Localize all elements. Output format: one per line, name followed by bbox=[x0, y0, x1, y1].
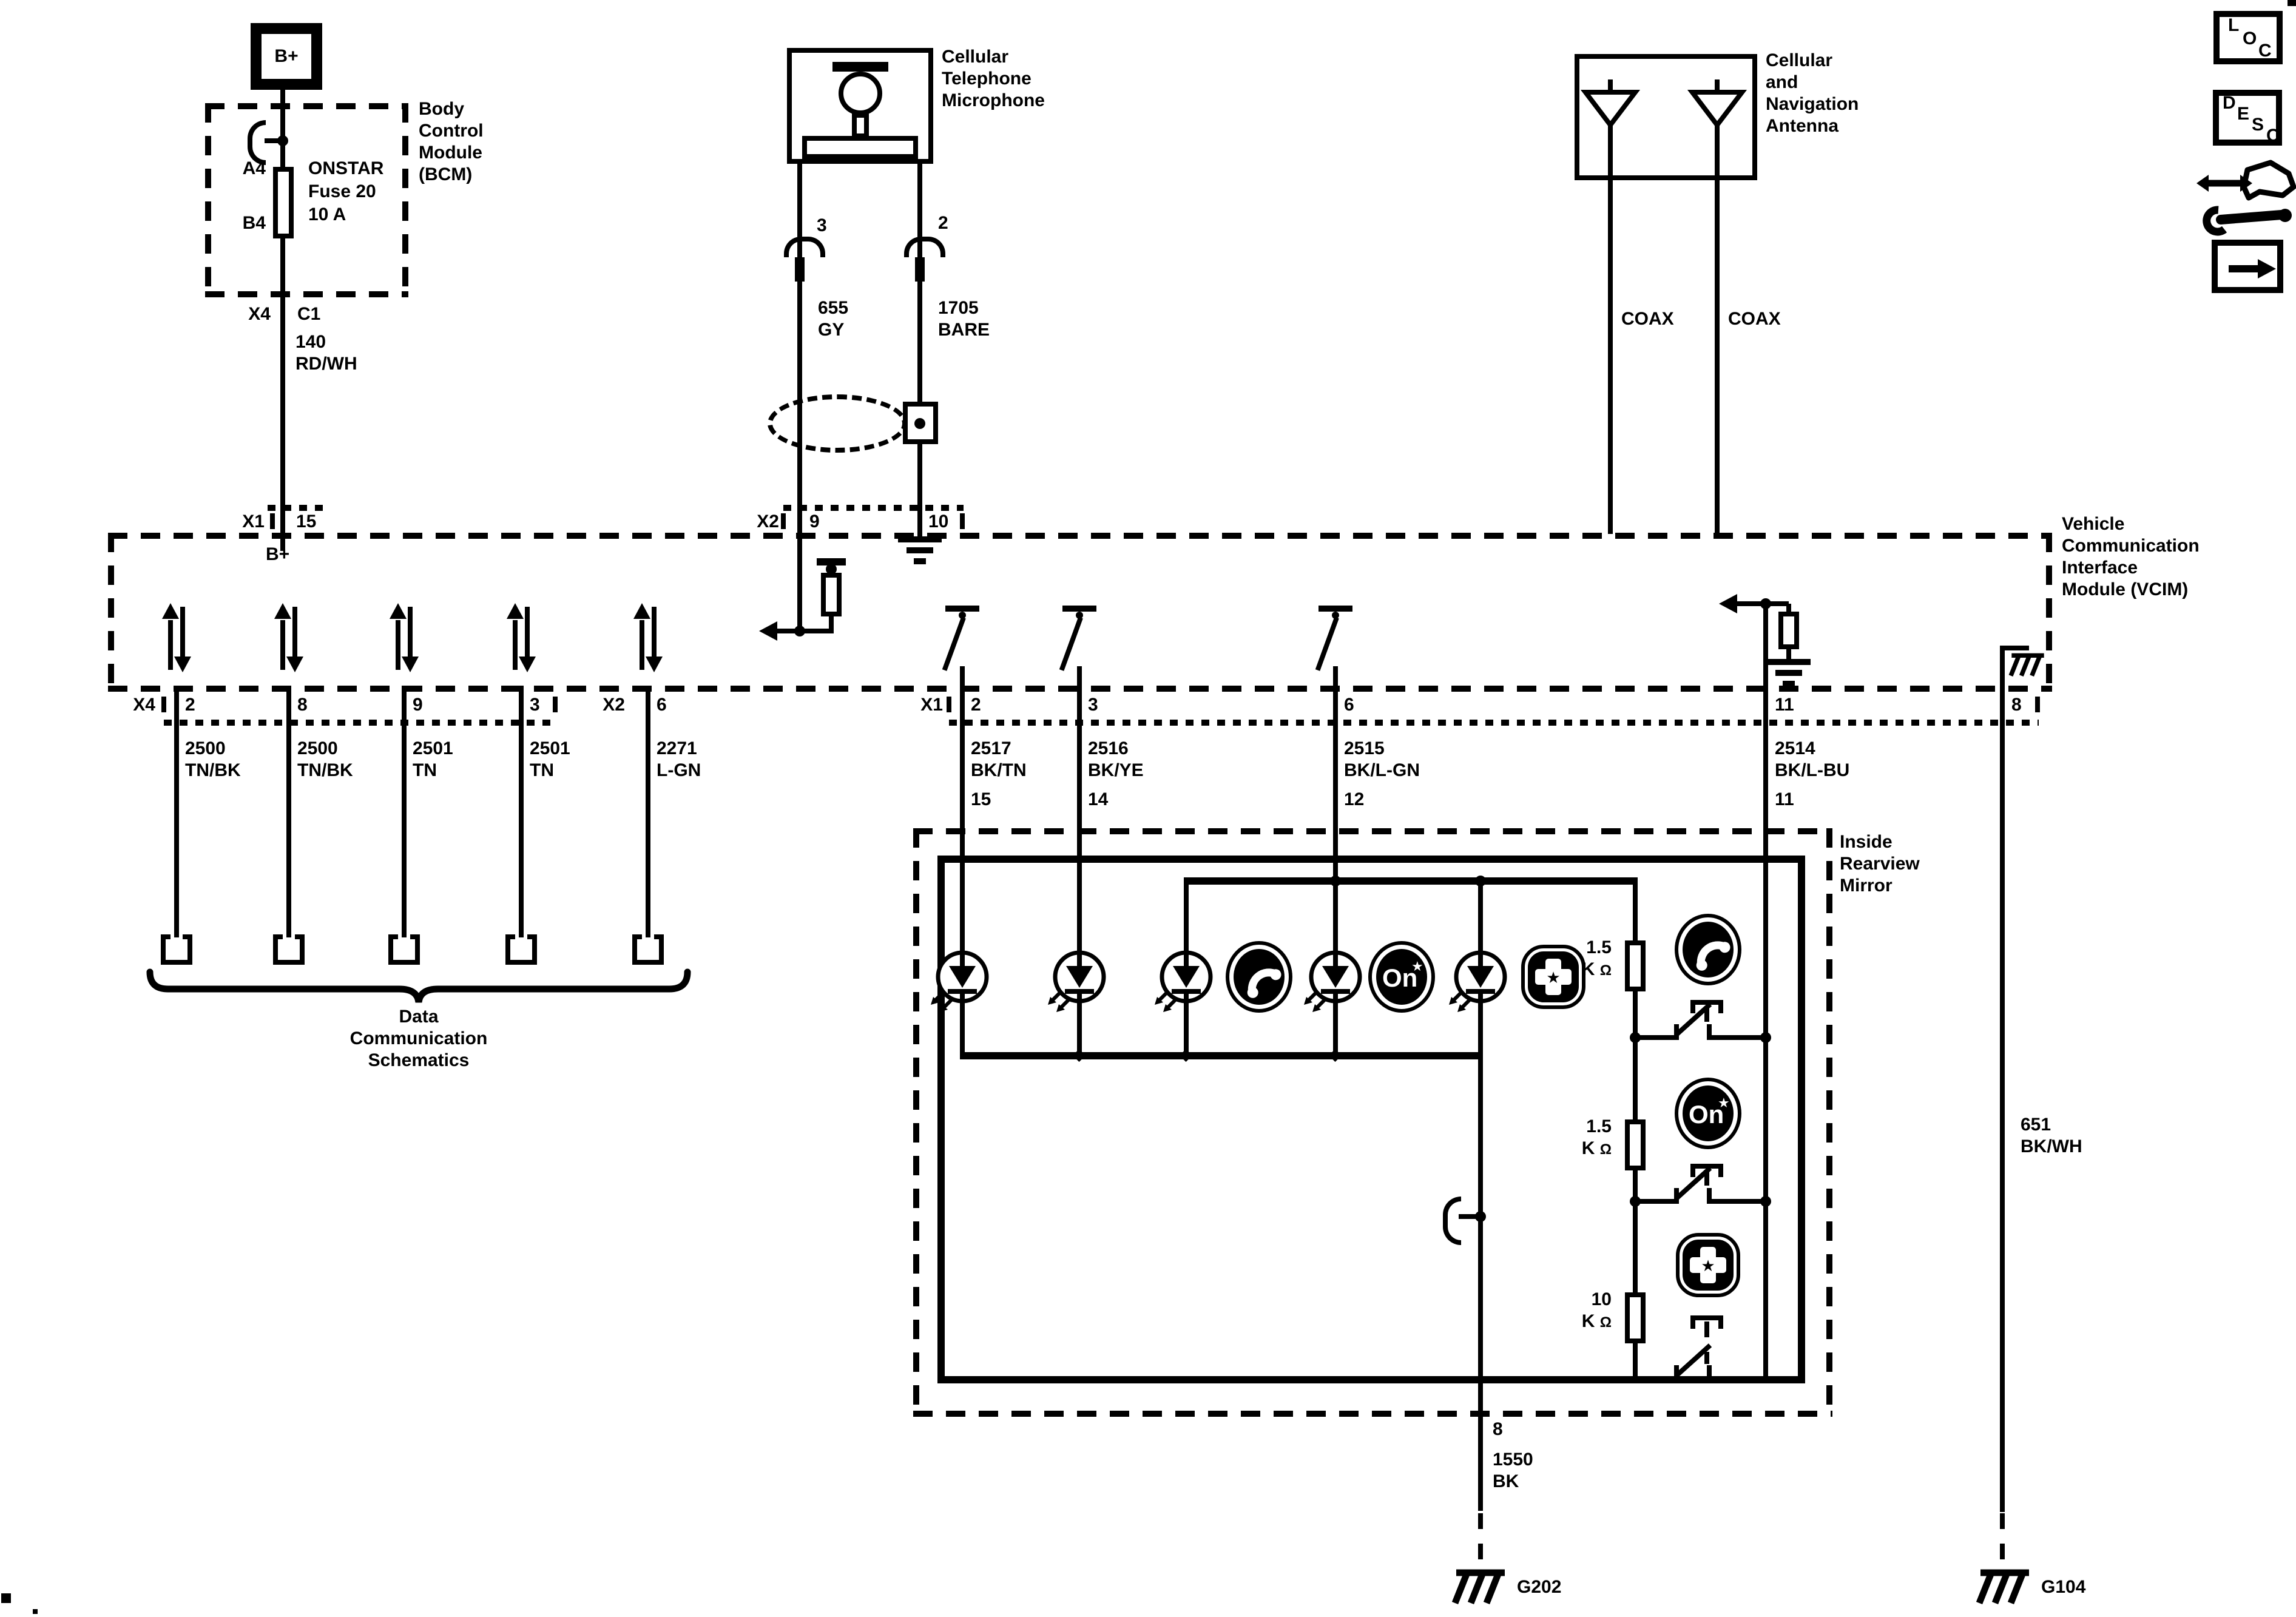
splice-dot bbox=[914, 418, 925, 429]
resistor2-value: 1.5 bbox=[1551, 1117, 1612, 1136]
sense-pullup-resistor bbox=[1778, 612, 1799, 649]
keypad-resistor-3 bbox=[1625, 1292, 1646, 1343]
arrow-down-icon bbox=[174, 657, 191, 672]
offpage-terminal bbox=[505, 960, 537, 965]
arrow-up-icon bbox=[162, 603, 179, 619]
earth-ground-icon bbox=[907, 547, 933, 553]
contact-line bbox=[1707, 1376, 1768, 1381]
svg-text:★: ★ bbox=[1411, 959, 1423, 974]
mirror-wire-num: 2516 bbox=[1088, 739, 1129, 758]
bcm-name-2: Control bbox=[419, 121, 484, 141]
arrow-up-shaft bbox=[168, 620, 173, 670]
gnd-stub bbox=[2000, 646, 2029, 650]
connector-tick bbox=[2035, 697, 2040, 712]
coax-label-left: COAX bbox=[1621, 309, 1674, 329]
arrow-up-icon bbox=[633, 603, 650, 619]
led-feed-bus bbox=[1184, 877, 1638, 885]
data-wire-color: TN/BK bbox=[185, 761, 241, 780]
mic-name-3: Microphone bbox=[942, 91, 1045, 110]
phone-icon bbox=[1223, 939, 1295, 1014]
connector-tick bbox=[270, 513, 275, 529]
brace-label-3: Schematics bbox=[206, 1051, 631, 1070]
ladder-left-rail bbox=[1633, 881, 1638, 943]
ladder-left-rail bbox=[1633, 1170, 1638, 1295]
arrow-down-icon bbox=[286, 657, 303, 672]
mirror-box-top bbox=[913, 828, 1832, 834]
data-wire-num: 2501 bbox=[413, 739, 453, 758]
arrow-up-shaft bbox=[280, 620, 285, 670]
offpage-terminal bbox=[388, 960, 420, 965]
onstar-icon: On★ bbox=[1365, 939, 1438, 1014]
earth-ground-icon bbox=[1783, 681, 1795, 687]
bcm-box-right bbox=[402, 103, 408, 297]
ground-g202-label: G202 bbox=[1517, 1578, 1561, 1597]
mirror-box-right bbox=[1826, 828, 1832, 1417]
wire-140-num: 140 bbox=[295, 333, 326, 352]
switch-contact-bar bbox=[1319, 606, 1352, 612]
mirror-wire-color: BK/L-GN bbox=[1344, 761, 1420, 780]
x1-pin-8: 8 bbox=[2011, 695, 2022, 715]
switch-contact-bar bbox=[1062, 606, 1096, 612]
mirror-wire-num: 2514 bbox=[1775, 739, 1815, 758]
actuator-link bbox=[1704, 1322, 1709, 1364]
x4-label: X4 bbox=[114, 695, 155, 715]
contact-line bbox=[1707, 1035, 1768, 1040]
mirror-pin: 12 bbox=[1344, 790, 1364, 809]
sense-stub bbox=[1766, 601, 1789, 606]
fuse-number: Fuse 20 bbox=[308, 182, 376, 201]
page-mark bbox=[33, 1609, 38, 1614]
mirror-wire-color: BK/L-BU bbox=[1775, 761, 1849, 780]
loc-icon[interactable]: L O C bbox=[2213, 11, 2283, 64]
connector-tick bbox=[553, 697, 558, 712]
arrow-down-icon bbox=[402, 657, 419, 672]
actuator-bracket bbox=[1718, 1320, 1723, 1329]
data-wire bbox=[402, 686, 407, 937]
mirror-pin-8: 8 bbox=[1493, 1420, 1503, 1439]
x4-pin-8: 8 bbox=[297, 695, 308, 715]
wire-655-color: GY bbox=[818, 320, 844, 340]
resistor2-unit: K Ω bbox=[1551, 1139, 1612, 1160]
earth-ground-icon bbox=[914, 558, 926, 564]
microphone-icon-head bbox=[839, 72, 882, 115]
mirror-pin: 15 bbox=[971, 790, 991, 809]
antenna-icon bbox=[1690, 90, 1744, 129]
earth-ground-icon bbox=[898, 536, 942, 542]
connector-tick bbox=[161, 697, 166, 712]
arrow-up-shaft bbox=[396, 620, 400, 670]
arrow-down-icon bbox=[646, 657, 663, 672]
mirror-box-bottom bbox=[913, 1411, 1832, 1417]
inline-connector-icon bbox=[904, 237, 945, 257]
led-icon bbox=[1299, 940, 1372, 1013]
data-wire bbox=[519, 686, 524, 937]
actuator-link bbox=[1704, 1006, 1709, 1028]
mirror-pin: 14 bbox=[1088, 790, 1108, 809]
next-page-icon[interactable] bbox=[2212, 240, 2283, 293]
junction-dot bbox=[1630, 1032, 1641, 1043]
actuator-bracket bbox=[1690, 1169, 1695, 1177]
sense-stub bbox=[1786, 604, 1791, 612]
brace-label-1: Data bbox=[206, 1007, 631, 1027]
ladder-left-rail bbox=[1633, 1343, 1638, 1379]
offpage-terminal bbox=[632, 960, 664, 965]
x4-pin-9: 9 bbox=[413, 695, 423, 715]
led-return-bus bbox=[960, 1052, 1483, 1059]
microphone-icon-stem bbox=[852, 113, 869, 138]
ladder-left-rail bbox=[1633, 991, 1638, 1122]
switch-lever bbox=[1315, 617, 1339, 671]
bcm-name-3: Module bbox=[419, 143, 482, 163]
arrow-down-shaft bbox=[292, 607, 297, 657]
x2-mic-pin9: 9 bbox=[809, 512, 820, 532]
ground-g104-label: G104 bbox=[2041, 1578, 2085, 1597]
bcm-name-4: (BCM) bbox=[419, 165, 472, 184]
keypad-resistor-2 bbox=[1625, 1119, 1646, 1170]
x2-mic-connector-line bbox=[783, 505, 964, 511]
x1-label: X1 bbox=[902, 695, 943, 715]
inline-connector-pin bbox=[915, 257, 925, 282]
mic-name-1: Cellular bbox=[942, 47, 1008, 67]
bcm-box-bottom bbox=[205, 291, 408, 297]
ground-wire-dashed bbox=[2000, 1513, 2005, 1565]
x1-pin-3: 3 bbox=[1088, 695, 1098, 715]
data-wire-num: 2271 bbox=[657, 739, 697, 758]
data-wire-color: TN bbox=[530, 761, 554, 780]
mirror-wire-color: BK/YE bbox=[1088, 761, 1144, 780]
antenna-name-1: Cellular bbox=[1766, 51, 1832, 70]
contact-line bbox=[1707, 1199, 1768, 1204]
wire-1550-color: BK bbox=[1493, 1472, 1519, 1491]
chassis-ground-icon bbox=[2008, 650, 2047, 681]
mirror-name-1: Inside bbox=[1840, 832, 1893, 852]
antenna-name-3: Navigation bbox=[1766, 95, 1859, 114]
mic-pin-left: 3 bbox=[817, 216, 827, 235]
mic-pin-right: 2 bbox=[938, 214, 948, 233]
x4-connector-line bbox=[164, 720, 555, 726]
junction-dot bbox=[1475, 1211, 1486, 1222]
offpage-terminal bbox=[273, 960, 305, 965]
coax-wire-right bbox=[1715, 124, 1720, 534]
repair-procedure-icon[interactable] bbox=[2196, 159, 2296, 235]
x1-top-pin: 15 bbox=[296, 512, 316, 532]
contact-tip bbox=[1707, 1365, 1712, 1376]
actuator-bracket bbox=[1718, 1005, 1723, 1013]
desc-icon[interactable]: D E S C bbox=[2213, 90, 2282, 146]
mic-signal-line bbox=[776, 629, 797, 633]
ground-wire-dashed bbox=[1478, 1513, 1483, 1565]
bcm-box-top bbox=[205, 103, 408, 109]
x1-top-connector-line bbox=[268, 505, 331, 511]
wire-140-color: RD/WH bbox=[295, 354, 357, 374]
signal-arrow-left-icon bbox=[1719, 594, 1737, 613]
junction-dot bbox=[1630, 1196, 1641, 1207]
vcim-name-4: Module (VCIM) bbox=[2062, 580, 2188, 599]
keypad-resistor-1 bbox=[1625, 940, 1646, 991]
shield-ellipse bbox=[768, 394, 907, 453]
wire-651-color: BK/WH bbox=[2021, 1137, 2082, 1156]
chassis-ground-icon bbox=[1976, 1568, 2034, 1608]
wire-1705-color: BARE bbox=[938, 320, 990, 340]
mic-bias-resistor bbox=[821, 573, 842, 616]
wire-1550-num: 1550 bbox=[1493, 1450, 1533, 1470]
resistor3-value: 10 bbox=[1551, 1290, 1612, 1309]
mirror-wire-num: 2517 bbox=[971, 739, 1011, 758]
data-wire-num: 2500 bbox=[185, 739, 226, 758]
fuse-pin-b4: B4 bbox=[228, 214, 266, 233]
antenna-name-2: and bbox=[1766, 73, 1798, 92]
x2-data-pin-6: 6 bbox=[657, 695, 667, 715]
mic-name-2: Telephone bbox=[942, 69, 1032, 89]
inline-connector-icon bbox=[784, 237, 825, 257]
resistor3-unit: K Ω bbox=[1551, 1312, 1612, 1332]
phone-button[interactable] bbox=[1672, 912, 1744, 987]
svg-text:★: ★ bbox=[1718, 1096, 1730, 1111]
vcim-name-1: Vehicle bbox=[2062, 515, 2124, 534]
fuse-name: ONSTAR bbox=[308, 159, 383, 178]
switch-contact-bar bbox=[945, 606, 979, 612]
vcim-name-3: Interface bbox=[2062, 558, 2138, 578]
x1-pin-11: 11 bbox=[1775, 695, 1794, 715]
data-wire bbox=[646, 686, 650, 937]
x1-pin-6: 6 bbox=[1344, 695, 1354, 715]
data-wire bbox=[286, 686, 291, 937]
switch-lever bbox=[1059, 617, 1083, 671]
actuator-link bbox=[1704, 1170, 1709, 1192]
chassis-ground-icon bbox=[1451, 1568, 1510, 1608]
arrow-shaft bbox=[2229, 265, 2259, 272]
x1-connector-line bbox=[949, 720, 2039, 726]
bcm-box-left bbox=[205, 103, 211, 297]
arrow-down-shaft bbox=[652, 607, 657, 657]
mirror-wire-color: BK/TN bbox=[971, 761, 1027, 780]
antenna-name-4: Antenna bbox=[1766, 116, 1838, 136]
actuator-bracket bbox=[1690, 1164, 1723, 1169]
arrow-up-shaft bbox=[513, 620, 518, 670]
arrow-down-shaft bbox=[525, 607, 530, 657]
x1-pin-2: 2 bbox=[971, 695, 981, 715]
arrow-up-icon bbox=[274, 603, 291, 619]
mirror-name-2: Rearview bbox=[1840, 854, 1920, 874]
arrow-up-icon bbox=[390, 603, 407, 619]
data-wire-color: L-GN bbox=[657, 761, 701, 780]
signal-arrow-left-icon bbox=[759, 621, 777, 641]
vcim-box-top bbox=[108, 533, 2052, 539]
bcm-conn-pin: C1 bbox=[297, 305, 320, 324]
switch-stub bbox=[1077, 666, 1082, 687]
arrow-up-shaft bbox=[640, 620, 644, 670]
x2-mic-pin10: 10 bbox=[928, 512, 948, 532]
actuator-bracket bbox=[1690, 1320, 1695, 1329]
fuse-rating: 10 A bbox=[308, 205, 346, 224]
inline-connector-pin bbox=[795, 257, 805, 282]
resistor1-value: 1.5 bbox=[1551, 938, 1612, 957]
sense-wire bbox=[1763, 604, 1768, 686]
fuse-symbol bbox=[273, 167, 294, 238]
x4-pin-3: 3 bbox=[530, 695, 540, 715]
offpage-terminal bbox=[161, 960, 192, 965]
wire-140 bbox=[280, 90, 285, 551]
data-wire-num: 2500 bbox=[297, 739, 338, 758]
svg-text:★: ★ bbox=[1701, 1257, 1715, 1275]
wiring-diagram: B+ A4 B4 ONSTAR Fuse 20 10 A Body Contro… bbox=[0, 0, 2296, 1617]
vcim-bplus-label: B+ bbox=[266, 545, 289, 564]
data-wire-num: 2501 bbox=[530, 739, 570, 758]
wire-1705 bbox=[917, 164, 922, 539]
coax-label-right: COAX bbox=[1728, 309, 1781, 329]
junction-dot bbox=[277, 135, 288, 146]
mirror-box-left bbox=[913, 828, 919, 1417]
arrow-down-shaft bbox=[408, 607, 413, 657]
bcm-name-1: Body bbox=[419, 100, 464, 119]
data-wire-color: TN/BK bbox=[297, 761, 353, 780]
wire-651-num: 651 bbox=[2021, 1115, 2051, 1135]
switch-stub bbox=[1333, 666, 1338, 687]
x2-data-label: X2 bbox=[582, 695, 625, 715]
junction-dot bbox=[1330, 876, 1341, 886]
microphone-icon-base bbox=[802, 136, 918, 159]
actuator-bracket bbox=[1690, 1315, 1723, 1320]
gnd-stub bbox=[2000, 648, 2005, 686]
microphone-icon bbox=[832, 62, 888, 72]
data-wire bbox=[174, 686, 179, 937]
connector-tick bbox=[947, 697, 951, 712]
arrow-down-icon bbox=[519, 657, 536, 672]
switch-stub bbox=[960, 666, 965, 687]
battery-symbol: B+ bbox=[251, 23, 322, 90]
x2-mic-label: X2 bbox=[737, 512, 779, 532]
switch-lever bbox=[942, 617, 966, 671]
data-wire-color: TN bbox=[413, 761, 437, 780]
wire-651 bbox=[2000, 686, 2005, 1512]
bcm-conn-label: X4 bbox=[231, 305, 271, 324]
led-icon bbox=[926, 940, 999, 1013]
junction-dot bbox=[1760, 1032, 1771, 1043]
led-icon bbox=[1043, 940, 1116, 1013]
vcim-box-left bbox=[108, 533, 114, 692]
wire-655 bbox=[797, 164, 802, 631]
antenna-icon bbox=[1583, 90, 1638, 129]
emergency-button[interactable]: ★ bbox=[1673, 1229, 1743, 1301]
earth-ground-icon bbox=[1767, 659, 1811, 665]
mirror-pin: 11 bbox=[1775, 790, 1794, 809]
contact-line bbox=[1633, 1376, 1679, 1381]
mirror-ground-wire bbox=[1478, 1056, 1483, 1511]
x1-top-label: X1 bbox=[225, 512, 265, 532]
mirror-wire-num: 2515 bbox=[1344, 739, 1385, 758]
actuator-bracket bbox=[1718, 1169, 1723, 1177]
arrow-right-icon bbox=[2258, 259, 2276, 279]
led-icon bbox=[1444, 940, 1517, 1013]
led-icon bbox=[1150, 940, 1223, 1013]
page-mark bbox=[2288, 0, 2296, 6]
brace-label-2: Communication bbox=[206, 1029, 631, 1048]
brace bbox=[147, 970, 690, 1006]
junction-dot bbox=[1760, 1196, 1771, 1207]
mirror-name-3: Mirror bbox=[1840, 876, 1893, 896]
wire-655-num: 655 bbox=[818, 299, 848, 318]
wire-1705-num: 1705 bbox=[938, 299, 979, 318]
battery-label: B+ bbox=[274, 47, 298, 66]
earth-ground-icon bbox=[1775, 670, 1802, 676]
sense-stub bbox=[1786, 649, 1791, 659]
connector-tick bbox=[960, 513, 965, 529]
onstar-button[interactable]: On★ bbox=[1672, 1076, 1744, 1151]
coax-wire-left bbox=[1608, 124, 1613, 534]
fuse-pin-a4: A4 bbox=[228, 159, 266, 178]
arrow-down-shaft bbox=[180, 607, 185, 657]
x4-pin-2: 2 bbox=[185, 695, 195, 715]
resistor1-unit: K Ω bbox=[1551, 960, 1612, 981]
page-mark bbox=[1, 1593, 11, 1603]
arrow-up-icon bbox=[507, 603, 524, 619]
actuator-bracket bbox=[1690, 1005, 1695, 1013]
connector-tick bbox=[781, 513, 786, 529]
vcim-name-2: Communication bbox=[2062, 536, 2200, 556]
actuator-bracket bbox=[1690, 1000, 1723, 1005]
